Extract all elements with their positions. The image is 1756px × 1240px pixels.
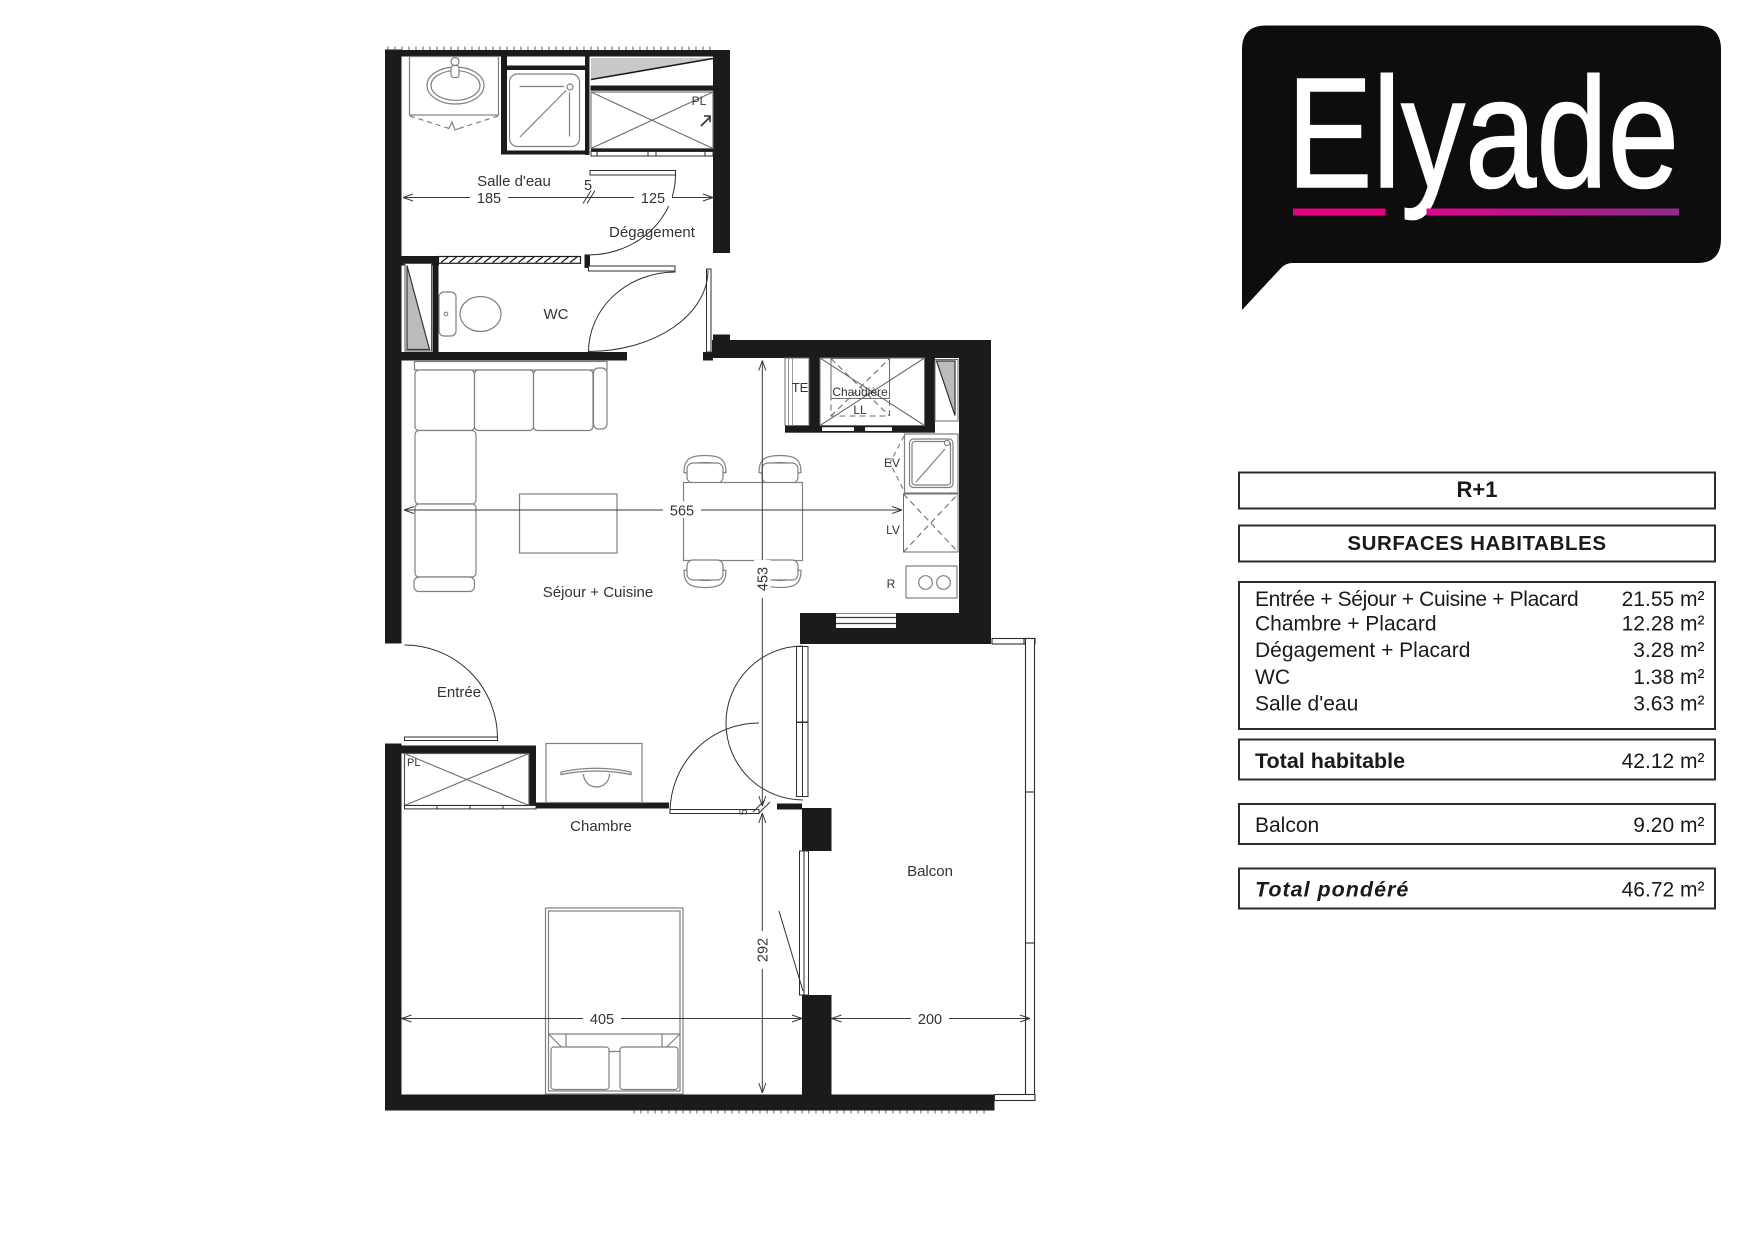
svg-text:Chambre: Chambre	[570, 818, 632, 835]
svg-text:LV: LV	[886, 523, 900, 537]
svg-text:Elyade: Elyade	[1287, 46, 1679, 221]
svg-text:EV: EV	[884, 456, 900, 470]
svg-text:Dégagement: Dégagement	[609, 224, 696, 241]
svg-text:Balcon: Balcon	[907, 863, 953, 880]
svg-text:3.63 m²: 3.63 m²	[1633, 693, 1704, 716]
svg-text:WC: WC	[1255, 666, 1290, 689]
svg-text:Salle d'eau: Salle d'eau	[1255, 693, 1358, 716]
svg-text:Total pondéré: Total pondéré	[1255, 878, 1409, 902]
svg-text:Entrée: Entrée	[437, 684, 481, 701]
svg-text:Chaudière: Chaudière	[832, 385, 888, 399]
svg-text:Total habitable: Total habitable	[1255, 749, 1405, 773]
svg-text:PL: PL	[692, 94, 707, 108]
svg-text:12.28 m²: 12.28 m²	[1622, 613, 1705, 636]
svg-text:292: 292	[755, 938, 771, 962]
svg-text:R: R	[887, 577, 896, 591]
svg-text:WC: WC	[544, 306, 569, 323]
svg-text:125: 125	[641, 191, 665, 207]
svg-text:42.12 m²: 42.12 m²	[1622, 750, 1705, 773]
svg-text:3.28 m²: 3.28 m²	[1633, 639, 1704, 662]
svg-text:Entrée + Séjour + Cuisine + Pl: Entrée + Séjour + Cuisine + Placard	[1255, 588, 1578, 611]
svg-text:Salle d'eau: Salle d'eau	[477, 173, 551, 190]
svg-text:Chambre + Placard: Chambre + Placard	[1255, 613, 1437, 636]
svg-text:TE: TE	[792, 380, 809, 395]
svg-text:565: 565	[670, 504, 694, 520]
svg-text:1.38 m²: 1.38 m²	[1633, 666, 1704, 689]
svg-text:Dégagement + Placard: Dégagement + Placard	[1255, 639, 1470, 662]
svg-text:405: 405	[590, 1012, 614, 1028]
svg-text:453: 453	[755, 567, 771, 591]
svg-text:185: 185	[477, 191, 501, 207]
svg-text:PL: PL	[407, 757, 420, 769]
svg-text:LL: LL	[853, 403, 867, 417]
svg-text:46.72 m²: 46.72 m²	[1622, 879, 1705, 902]
svg-text:5: 5	[584, 178, 592, 194]
svg-text:200: 200	[918, 1012, 942, 1028]
svg-text:Séjour + Cuisine: Séjour + Cuisine	[543, 584, 653, 601]
svg-text:SURFACES HABITABLES: SURFACES HABITABLES	[1347, 532, 1606, 555]
svg-text:Balcon: Balcon	[1255, 814, 1319, 837]
svg-text:R+1: R+1	[1457, 477, 1498, 502]
svg-text:5: 5	[738, 809, 750, 815]
svg-text:9.20 m²: 9.20 m²	[1633, 814, 1704, 837]
svg-text:21.55 m²: 21.55 m²	[1622, 588, 1705, 611]
